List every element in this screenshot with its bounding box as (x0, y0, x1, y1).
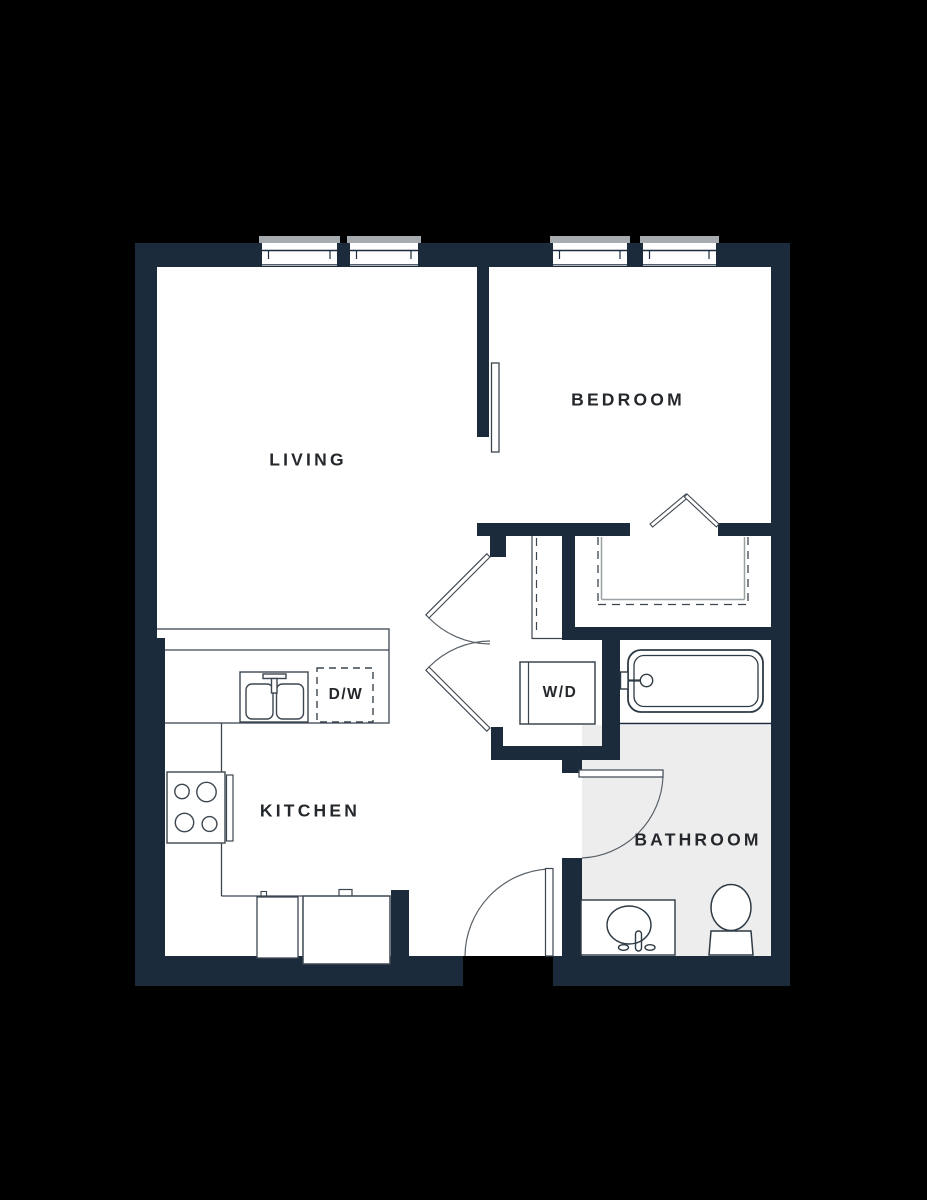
wd-left-stub (491, 727, 503, 746)
window (640, 236, 719, 266)
window (550, 236, 630, 266)
hall-door-stub (490, 536, 506, 557)
kitchen-label: KITCHEN (260, 801, 360, 822)
south-wall-left (135, 956, 463, 986)
floors (157, 267, 771, 956)
hall-center-wall (562, 536, 575, 640)
south-wall-right (553, 956, 790, 986)
living-room-label: LIVING (269, 450, 347, 471)
bath-left-wall (562, 858, 582, 956)
toilet-bowl (711, 885, 751, 931)
refrigerator (303, 890, 390, 965)
bathtub (621, 650, 764, 712)
toilet (709, 885, 753, 956)
window (259, 236, 340, 266)
dishwasher-label: D/W (329, 686, 364, 704)
wd-right-wall (602, 640, 620, 760)
east-wall (771, 243, 790, 986)
west-wall-kitchen (135, 638, 165, 986)
bedroom-sliding-door (492, 363, 500, 452)
kitchen-sink (240, 672, 308, 722)
vanity-sink (581, 900, 675, 955)
floor-plan: LIVING BEDROOM KITCHEN BATHROOM W/D D/W (0, 0, 927, 1200)
hall-wall-left (477, 523, 630, 536)
bedroom-label: BEDROOM (571, 390, 685, 411)
toilet-tank (709, 931, 753, 955)
base-cabinet (257, 892, 298, 959)
hall-wall-right (718, 523, 772, 536)
tub-top-wall (562, 627, 772, 640)
washer-dryer-label: W/D (543, 684, 578, 702)
stove (167, 772, 233, 843)
tub-faucet (621, 672, 629, 689)
window (347, 236, 421, 266)
bathroom-label: BATHROOM (634, 830, 761, 851)
entry-stub-wall (391, 890, 409, 956)
floor-plan-drawing (0, 0, 927, 1200)
living-bedroom-partition (477, 267, 489, 437)
wd-bottom-wall (491, 746, 620, 760)
